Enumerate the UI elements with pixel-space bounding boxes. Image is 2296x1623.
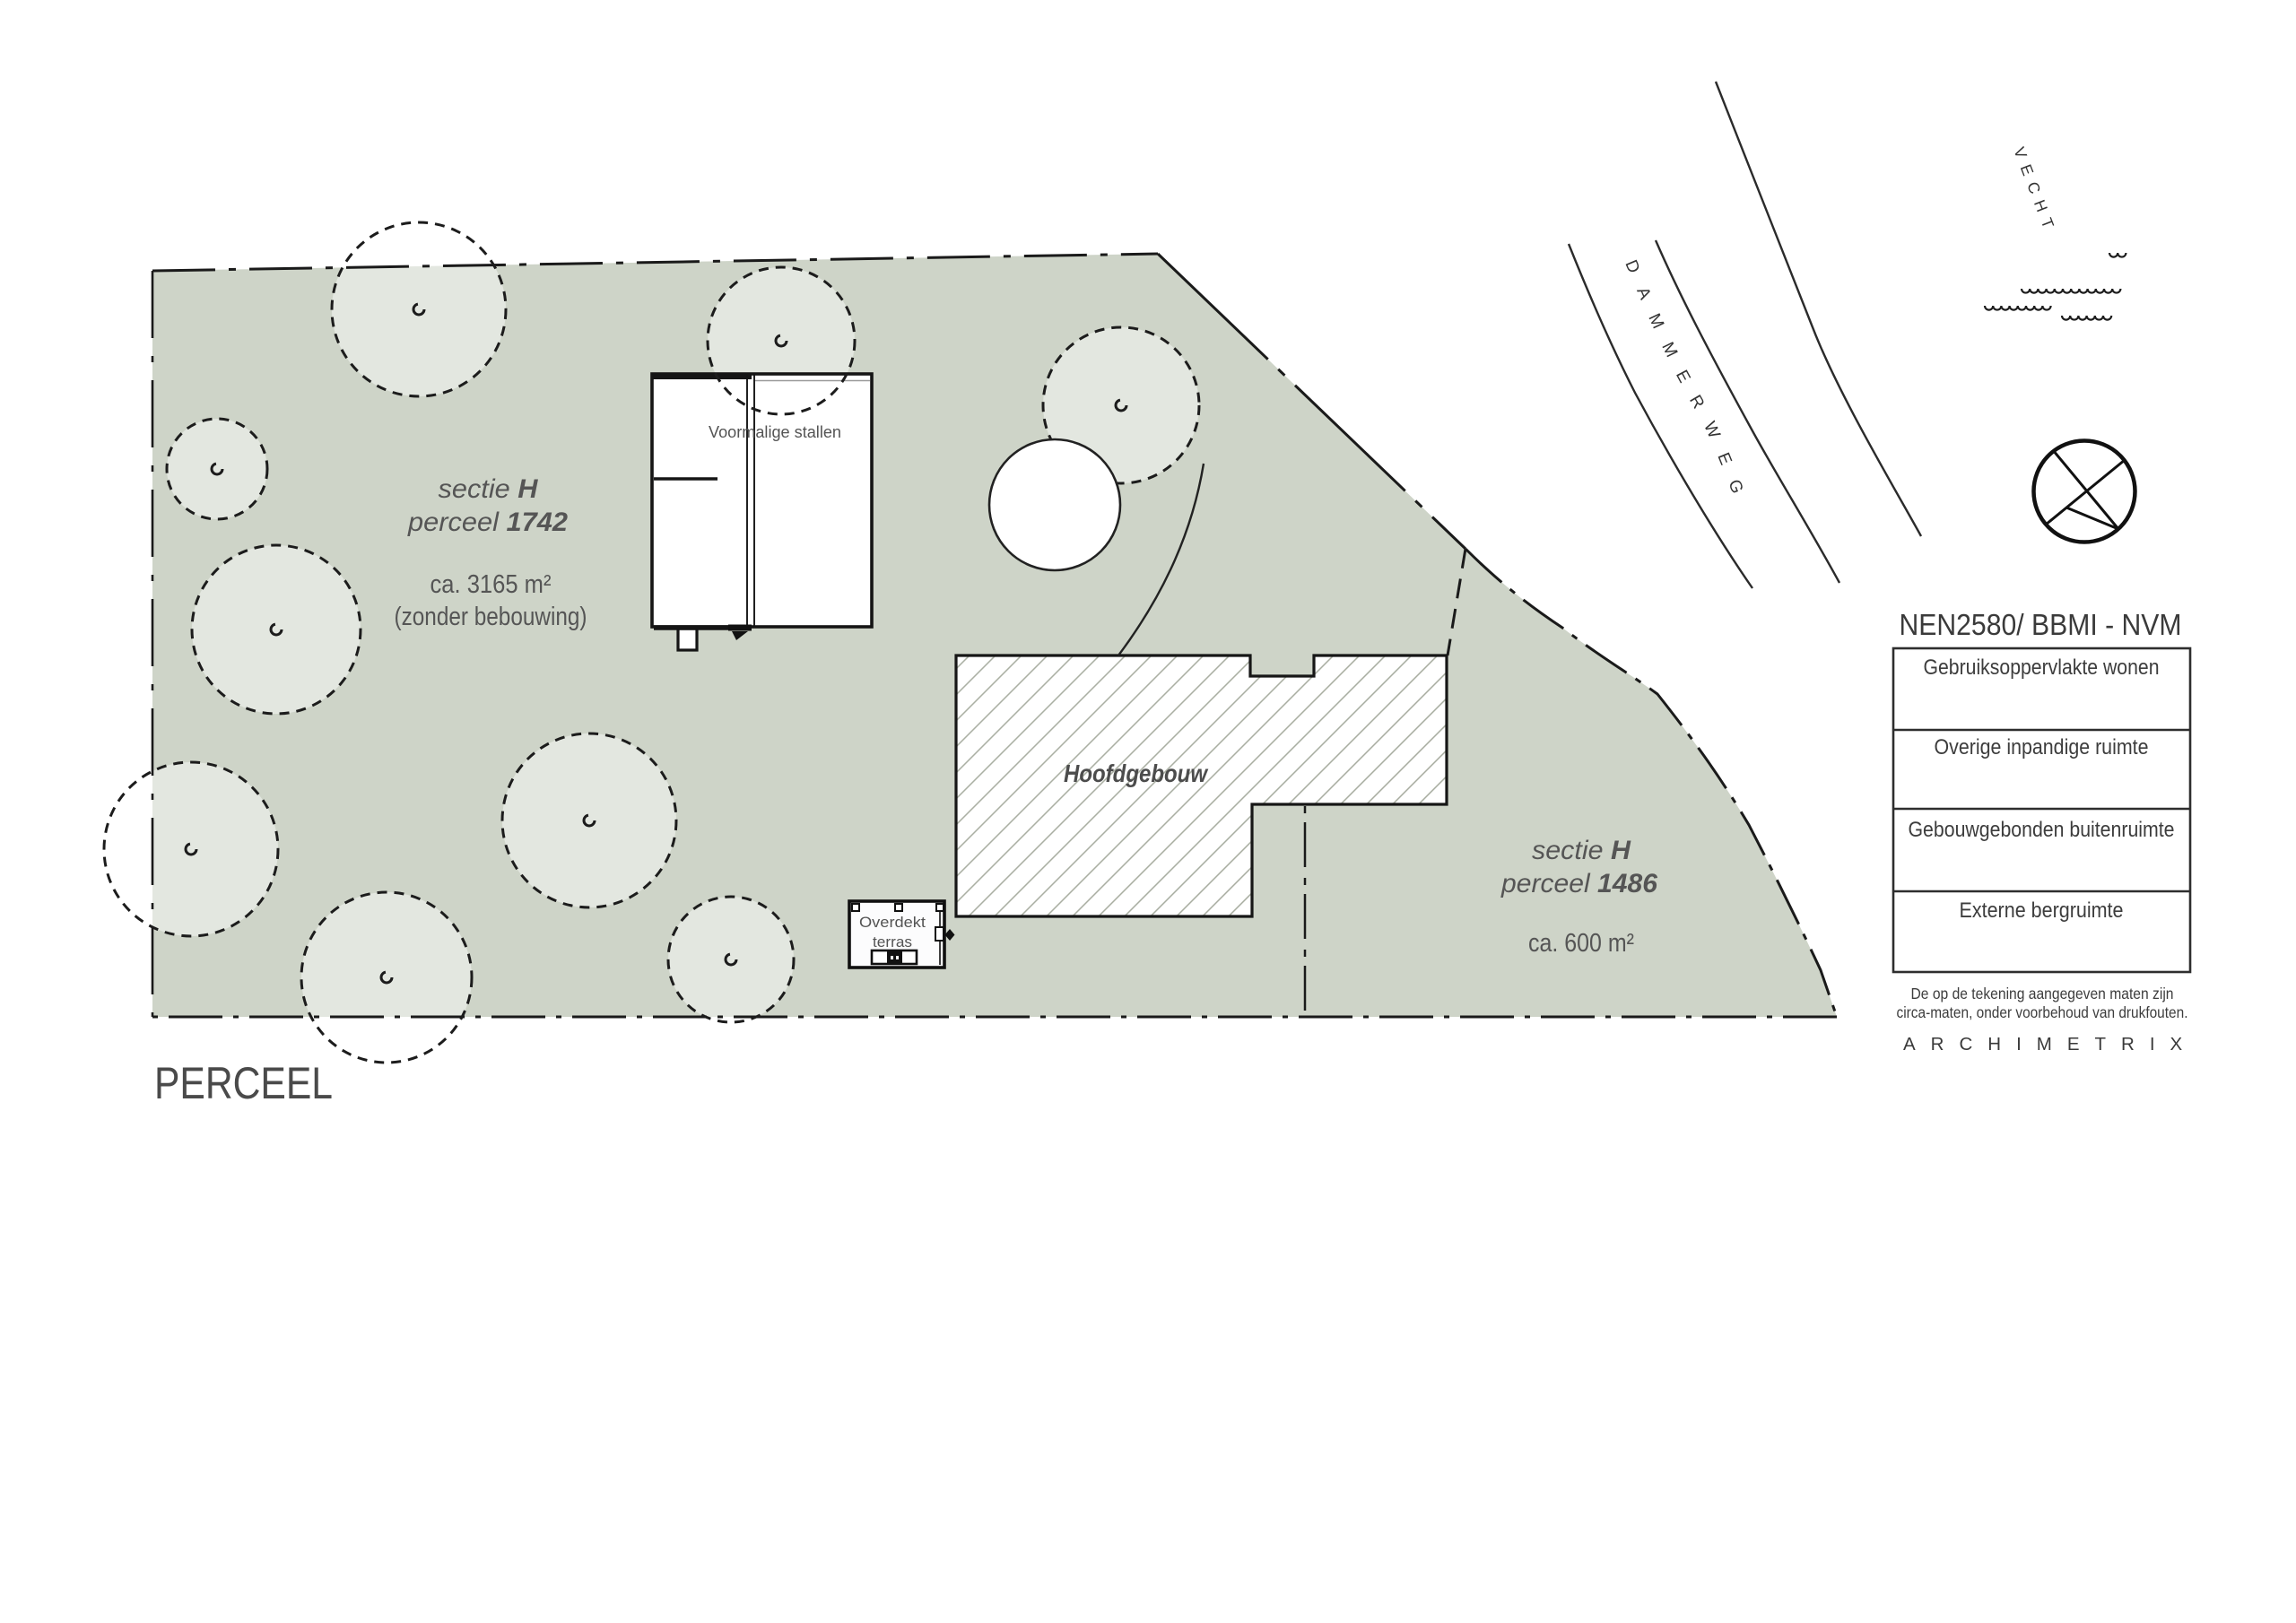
svg-text:perceel 1742: perceel 1742 xyxy=(407,508,568,537)
svg-text:perceel 1486: perceel 1486 xyxy=(1500,869,1657,898)
svg-text:Voormalige stallen: Voormalige stallen xyxy=(709,422,841,441)
svg-text:ARCHIMETRIX: ARCHIMETRIX xyxy=(1903,1034,2197,1055)
svg-text:DAMMERWEG: DAMMERWEG xyxy=(1621,257,1752,513)
svg-text:De op de tekening aangegeven m: De op de tekening aangegeven maten zijn xyxy=(1911,985,2174,1002)
svg-text:NEN2580/ BBMI - NVM: NEN2580/ BBMI - NVM xyxy=(1900,608,2182,641)
svg-text:ca. 600 m²: ca. 600 m² xyxy=(1528,929,1634,958)
svg-text:Gebouwgebonden buitenruimte: Gebouwgebonden buitenruimte xyxy=(1909,818,2175,842)
svg-text:(zonder bebouwing): (zonder bebouwing) xyxy=(395,603,587,631)
svg-text:PERCEEL: PERCEEL xyxy=(154,1058,333,1108)
svg-text:terras: terras xyxy=(873,934,912,950)
svg-text:Externe bergruimte: Externe bergruimte xyxy=(1960,898,2124,923)
svg-text:sectie H: sectie H xyxy=(439,474,539,504)
svg-text:circa-maten, onder voorbehoud: circa-maten, onder voorbehoud van drukfo… xyxy=(1897,1003,2188,1021)
svg-text:Gebruiksoppervlakte wonen: Gebruiksoppervlakte wonen xyxy=(1924,655,2160,680)
svg-text:sectie H: sectie H xyxy=(1532,836,1631,865)
svg-text:Overdekt: Overdekt xyxy=(859,915,926,931)
svg-text:Hoofdgebouw: Hoofdgebouw xyxy=(1064,759,1209,787)
svg-text:Overige inpandige ruimte: Overige inpandige ruimte xyxy=(1935,735,2149,759)
svg-text:ca. 3165 m²: ca. 3165 m² xyxy=(430,570,552,599)
svg-text:VECHT: VECHT xyxy=(2010,144,2060,239)
